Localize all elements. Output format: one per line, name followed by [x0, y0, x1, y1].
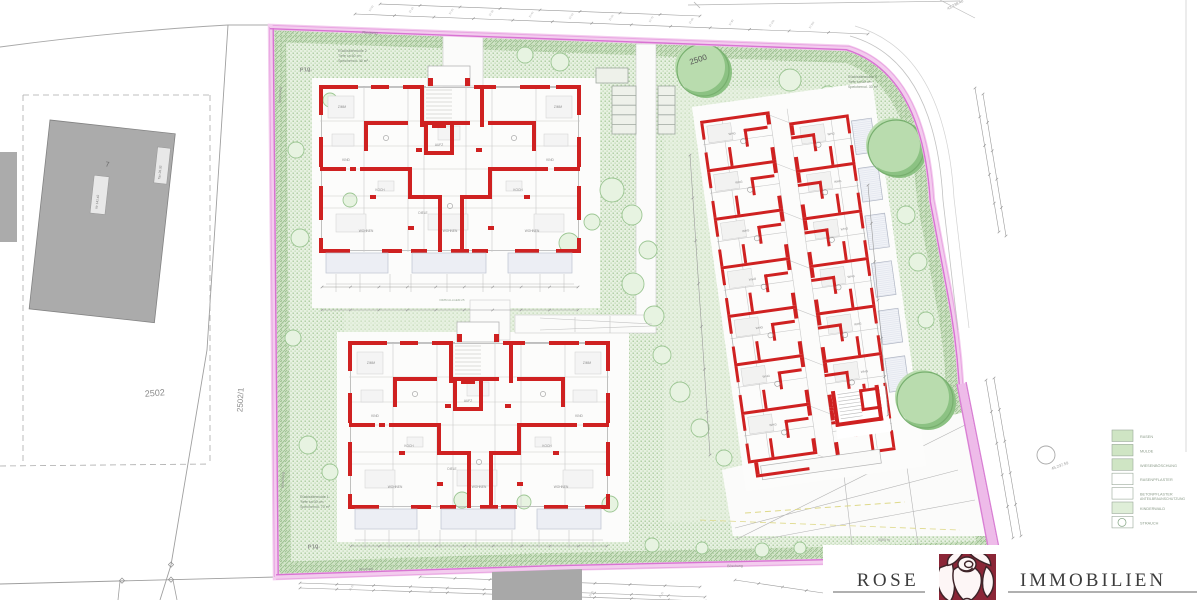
svg-text:DIMM ALLGEM 25: DIMM ALLGEM 25	[439, 298, 464, 302]
svg-text:STRAUCH: STRAUCH	[1140, 521, 1159, 525]
svg-text:ZIMM: ZIMM	[554, 105, 562, 109]
svg-text:Böschung: Böschung	[278, 87, 283, 103]
svg-text:BETONPFLASTER: BETONPFLASTER	[1140, 493, 1173, 497]
svg-text:KOCH: KOCH	[513, 188, 523, 192]
svg-text:WIESENBÖSCHUNG: WIESENBÖSCHUNG	[1140, 464, 1177, 468]
svg-text:MULDE: MULDE	[1140, 449, 1154, 453]
svg-text:Tiefe ca.30 cm: Tiefe ca.30 cm	[848, 80, 871, 84]
svg-text:Speichervol. 40 m³: Speichervol. 40 m³	[338, 59, 369, 63]
svg-text:Rückhaltemulde 1: Rückhaltemulde 1	[300, 495, 329, 499]
svg-text:Böschung: Böschung	[727, 564, 743, 568]
svg-text:WOHNEN: WOHNEN	[525, 229, 540, 233]
svg-text:IMMOBILIEN: IMMOBILIEN	[1020, 570, 1166, 591]
svg-text:KIND: KIND	[342, 158, 350, 162]
svg-text:AUFZ: AUFZ	[435, 143, 443, 147]
svg-text:WOHNEN: WOHNEN	[359, 229, 374, 233]
svg-text:DIELE: DIELE	[418, 211, 427, 215]
svg-text:2502: 2502	[144, 387, 165, 398]
svg-text:Tiefe ca.60 cm: Tiefe ca.60 cm	[338, 54, 361, 58]
svg-text:WOHNEN: WOHNEN	[443, 229, 458, 233]
svg-text:Tiefe ca.30 cm: Tiefe ca.30 cm	[300, 500, 323, 504]
svg-text:KIND: KIND	[546, 158, 554, 162]
svg-text:RASEN: RASEN	[1140, 435, 1153, 439]
svg-text:5000 m: 5000 m	[878, 538, 890, 542]
svg-text:KOCH: KOCH	[375, 188, 385, 192]
svg-text:ANTEILBRAUNSCHUTZUNG: ANTEILBRAUNSCHUTZUNG	[1140, 497, 1185, 501]
svg-text:Ringweg: Ringweg	[362, 30, 378, 36]
svg-text:Böschung: Böschung	[281, 472, 286, 488]
svg-text:2502/1: 2502/1	[235, 387, 245, 412]
svg-text:Speichervol. 30 m³: Speichervol. 30 m³	[848, 85, 879, 89]
svg-text:Speichervol. 70 m³: Speichervol. 70 m³	[300, 505, 331, 509]
svg-text:ZIMM: ZIMM	[338, 105, 346, 109]
svg-text:KINDERWALD: KINDERWALD	[1140, 507, 1165, 511]
svg-text:Rückhaltemulde 3: Rückhaltemulde 3	[848, 75, 877, 79]
svg-text:Rückhaltemulde 2: Rückhaltemulde 2	[338, 49, 367, 53]
svg-text:RASENPFLASTER: RASENPFLASTER	[1140, 478, 1173, 482]
svg-text:ROSE: ROSE	[857, 570, 920, 591]
svg-text:Böschung: Böschung	[359, 567, 374, 572]
